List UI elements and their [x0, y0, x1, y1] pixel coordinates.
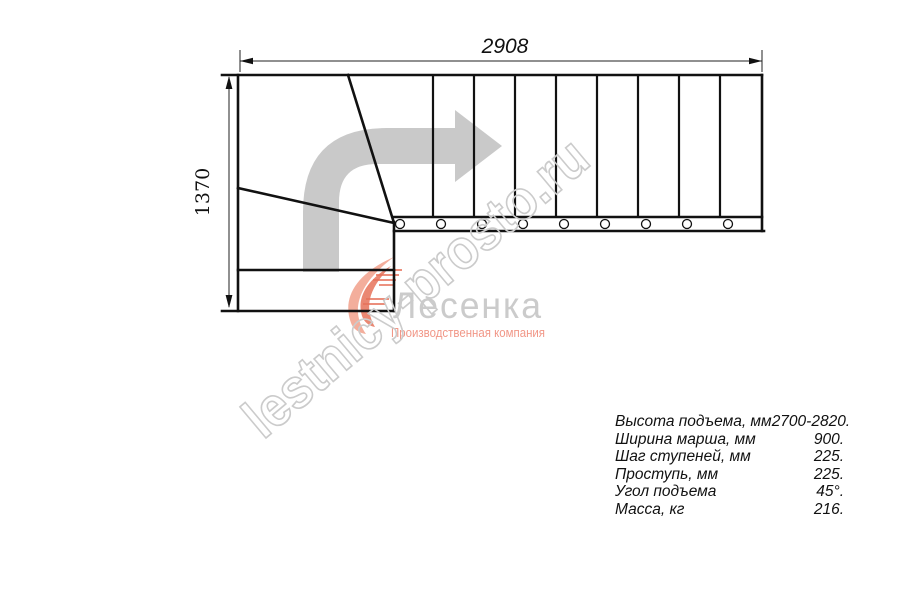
- spec-label: Высота подъема, мм: [615, 413, 772, 431]
- arrowhead-right: [749, 58, 762, 65]
- arrowhead-down: [226, 295, 233, 308]
- dimension-top: 2908: [240, 35, 762, 72]
- spec-row: Проступь, мм 225.: [615, 466, 844, 484]
- spec-value: 2700-2820.: [772, 413, 850, 431]
- spec-value: 900.: [814, 431, 844, 449]
- screw-hole: [601, 220, 610, 229]
- spec-label: Угол подъема: [615, 483, 716, 501]
- dimension-top-value: 2908: [481, 35, 529, 58]
- stair-drawing-canvas: Лесенка Производственная компания 2908 1…: [0, 0, 900, 600]
- spec-table: Высота подъема, мм 2700-2820. Ширина мар…: [615, 413, 844, 519]
- screw-hole: [724, 220, 733, 229]
- spec-label: Шаг ступеней, мм: [615, 448, 751, 466]
- arrowhead-left: [240, 58, 253, 65]
- screw-hole: [642, 220, 651, 229]
- screw-hole: [683, 220, 692, 229]
- spec-row: Высота подъема, мм 2700-2820.: [615, 413, 844, 431]
- watermark-text: lestnicy-prosto.ru: [231, 125, 601, 450]
- spec-value: 225.: [814, 448, 844, 466]
- spec-row: Ширина марша, мм 900.: [615, 431, 844, 449]
- screw-hole: [560, 220, 569, 229]
- spec-label: Масса, кг: [615, 501, 684, 519]
- spec-value: 225.: [814, 466, 844, 484]
- dimension-left: 1370: [192, 76, 232, 308]
- spec-row: Масса, кг 216.: [615, 501, 844, 519]
- spec-row: Шаг ступеней, мм 225.: [615, 448, 844, 466]
- spec-label: Проступь, мм: [615, 466, 718, 484]
- spec-value: 45°.: [816, 483, 844, 501]
- arrowhead-up: [226, 76, 233, 89]
- screw-hole: [396, 220, 405, 229]
- dimension-left-value: 1370: [192, 168, 214, 216]
- spec-label: Ширина марша, мм: [615, 431, 756, 449]
- spec-value: 216.: [814, 501, 844, 519]
- spec-row: Угол подъема 45°.: [615, 483, 844, 501]
